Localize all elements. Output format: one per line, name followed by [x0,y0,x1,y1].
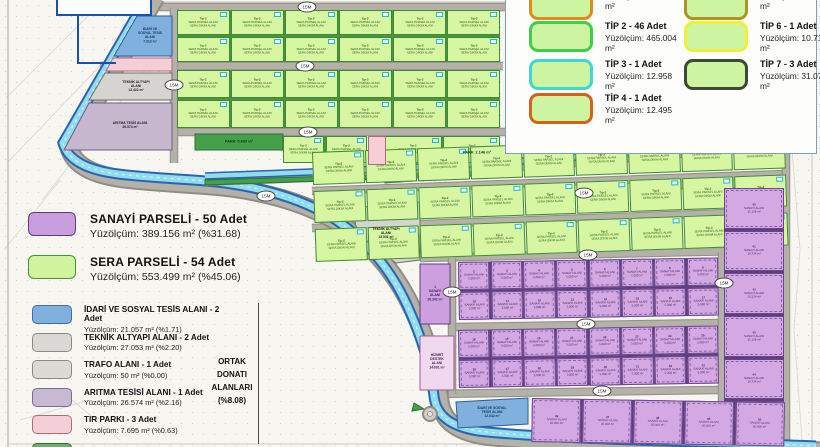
tip-swatch [529,59,593,90]
tip-swatch [529,93,593,124]
legend-divider [258,303,259,444]
ortak-line: DONATI [205,368,259,381]
legend-swatch [32,360,72,379]
legend-area: Yüzölçüm: 26.574 m² (%2.16) [84,398,203,407]
callout-box [56,0,152,16]
zoning-plan-map: Tip-2SERA PARSEL ALANISERA DİKİM ALANITi… [0,0,820,447]
tip-title: TİP 2 - 46 Adet [605,21,679,31]
tip-area: Yüzölçüm: 10.180 m² [605,0,679,11]
road-width-text: 15M [262,194,271,199]
tip-swatch [529,21,593,52]
legend-item-common: ARITMA TESİSİ ALANI - 1 AdetYüzölçüm: 26… [32,388,232,408]
tip-area: Yüzölçüm: 12.495 m² [605,105,679,125]
tip-entry: TİP 2 - 46 AdetYüzölçüm: 465.004 m² [529,21,679,53]
road-width-text: 15M [580,191,589,196]
road-width-badge: 15M [296,61,314,71]
legend-swatch [32,305,72,324]
tip-area: Yüzölçüm: 11.065 m² [760,0,820,11]
tip-area: Yüzölçüm: 465.004 m² [605,33,679,53]
tip-swatch [684,21,748,52]
legend-swatch [32,415,72,434]
legend-tip-panel: Yüzölçüm: 10.180 m²TİP 2 - 46 AdetYüzölç… [505,0,817,154]
legend-title: SANAYİ PARSELİ - 50 Adet [90,212,247,226]
legend-item-common: TEKNİK ALTYAPI ALANI - 2 AdetYüzölçüm: 2… [32,333,232,353]
road-width-text: 15M [170,83,179,88]
tip-entry: TİP 4 - 1 AdetYüzölçüm: 12.495 m² [529,93,679,125]
legend-title: İDARİ VE SOSYAL TESİS ALANI - 2 Adet [84,305,232,323]
road-width-badge: 15M [577,319,595,329]
road-width-text: 15M [303,5,312,10]
tip-area: Yüzölçüm: 12.958 m² [605,71,679,91]
legend-area: Yüzölçüm: 50 m² (%0.00) [84,371,171,380]
ortak-line: ORTAK [205,355,259,368]
road-width-text: 15M [304,130,313,135]
legend-area: Yüzölçüm: 553.499 m² (%45.06) [90,271,241,283]
legend-area: Yüzölçüm: 389.156 m² (%31.68) [90,228,247,240]
legend-swatch [32,388,72,407]
ortak-line: ALANLARI [205,381,259,394]
road-width-text: 15M [598,389,607,394]
tip-title: TİP 3 - 1 Adet [605,59,679,69]
legend-title: TIR PARKI - 3 Adet [84,415,178,424]
legend-swatch [28,212,76,236]
legend-item-common: TIR PARKI - 3 AdetYüzölçüm: 7.695 m² (%0… [32,415,232,435]
road-width-badge: 15M [298,2,316,12]
road-width-badge: 15M [257,191,275,201]
road-width-badge: 15M [443,287,461,297]
tip-area: Yüzölçüm: 31.077 m² [760,71,820,91]
road-width-badge: 15M [715,278,733,288]
legend-swatch [28,255,76,279]
tip-entry: Yüzölçüm: 10.180 m² [529,0,679,20]
legend-title: SERA PARSELİ - 54 Adet [90,255,241,269]
legend-area: Yüzölçüm: 7.695 m² (%0.63) [84,426,178,435]
tip-title: TİP 4 - 1 Adet [605,93,679,103]
road-width-text: 15M [301,64,310,69]
tip-entry: TİP 3 - 1 AdetYüzölçüm: 12.958 m² [529,59,679,91]
tip-area: Yüzölçüm: 10.711 m² [760,33,820,53]
legend-title: TEKNİK ALTYAPI ALANI - 2 Adet [84,333,209,342]
road-width-text: 15M [448,290,457,295]
tip-swatch [529,0,593,20]
legend-item-common: TRAFO ALANI - 1 AdetYüzölçüm: 50 m² (%0.… [32,360,232,380]
road-width-text: 15M [582,322,591,327]
tip-entry: Yüzölçüm: 11.065 m² [684,0,820,20]
tip-entry: TİP 7 - 3 AdetYüzölçüm: 31.077 m² [684,59,820,91]
callout-leader-line [78,13,116,63]
road-width-text: 15M [584,253,593,258]
legend-item-main: SANAYİ PARSELİ - 50 AdetYüzölçüm: 389.15… [28,212,258,240]
tip-swatch [684,59,748,90]
road-width-badge: 15M [575,188,593,198]
legend-swatch [32,333,72,352]
tip-title: TİP 6 - 1 Adet [760,21,820,31]
road-width-text: 15M [720,281,729,286]
road-width-badge: 15M [579,250,597,260]
tip-entry: TİP 6 - 1 AdetYüzölçüm: 10.711 m² [684,21,820,53]
ortak-line: (%8.08) [205,394,259,407]
road-width-badge: 15M [165,80,183,90]
legend-area: Yüzölçüm: 27.053 m² (%2.20) [84,343,209,352]
legend-item-main: SERA PARSELİ - 54 AdetYüzölçüm: 553.499 … [28,255,258,283]
legend-item-common [32,443,232,447]
ortak-donati-label: ORTAKDONATIALANLARI(%8.08) [205,355,259,407]
road-width-badge: 15M [593,386,611,396]
tip-swatch [684,0,748,20]
legend-item-common: İDARİ VE SOSYAL TESİS ALANI - 2 AdetYüzö… [32,305,232,334]
tip-title: TİP 7 - 3 Adet [760,59,820,69]
road-width-badge: 15M [299,127,317,137]
legend-title: TRAFO ALANI - 1 Adet [84,360,171,369]
legend-swatch [32,443,72,447]
legend-title: ARITMA TESİSİ ALANI - 1 Adet [84,388,203,397]
